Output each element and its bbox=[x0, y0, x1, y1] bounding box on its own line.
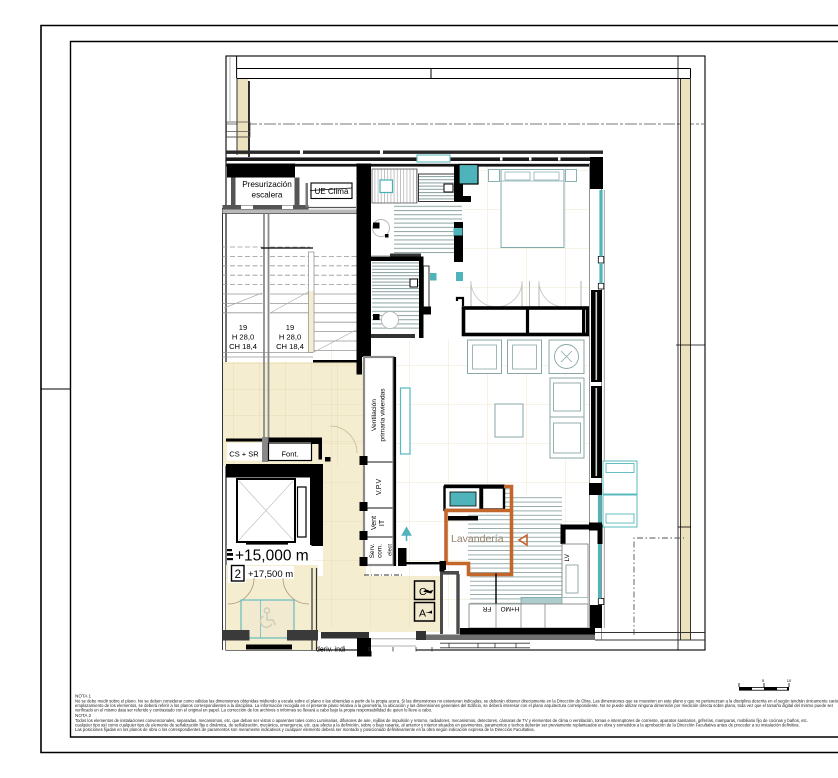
svg-text:+17,500 m: +17,500 m bbox=[248, 569, 293, 580]
svg-text:Ventilación: Ventilación bbox=[371, 399, 378, 431]
svg-text:LV: LV bbox=[564, 553, 571, 561]
svg-text:A: A bbox=[419, 608, 426, 620]
svg-text:CS + SR: CS + SR bbox=[229, 450, 259, 459]
svg-text:CH 18,4: CH 18,4 bbox=[229, 342, 257, 351]
svg-text:19: 19 bbox=[239, 323, 247, 332]
svg-text:com.: com. bbox=[377, 544, 384, 558]
svg-text:primaria viviendas: primaria viviendas bbox=[380, 388, 387, 442]
svg-text:+15,000 m: +15,000 m bbox=[235, 548, 309, 565]
svg-text:Las posiciones fijadas en los: Las posiciones fijadas en los planos de … bbox=[75, 727, 535, 732]
svg-text:10: 10 bbox=[787, 678, 792, 683]
svg-text:Serv.: Serv. bbox=[369, 544, 376, 559]
svg-text:2: 2 bbox=[235, 569, 241, 581]
svg-text:Presurización: Presurización bbox=[242, 180, 292, 189]
svg-text:verificado en el mismo data se: verificado en el mismo data ser referido… bbox=[75, 708, 432, 713]
svg-text:Font.: Font. bbox=[281, 450, 298, 459]
svg-text:FR: FR bbox=[482, 605, 491, 612]
svg-text:escalera: escalera bbox=[252, 191, 283, 200]
svg-text:Lavandería: Lavandería bbox=[451, 533, 504, 545]
svg-text:H+MO: H+MO bbox=[501, 605, 520, 612]
svg-text:CH 18,4: CH 18,4 bbox=[276, 342, 304, 351]
svg-text:19: 19 bbox=[286, 323, 294, 332]
svg-text:H 28,0: H 28,0 bbox=[279, 333, 301, 342]
svg-text:deriv. indi: deriv. indi bbox=[316, 647, 346, 654]
svg-text:IT: IT bbox=[379, 519, 386, 526]
svg-text:H 28,0: H 28,0 bbox=[232, 333, 254, 342]
svg-text:V.P.V: V.P.V bbox=[376, 478, 383, 495]
svg-text:elect: elect bbox=[388, 544, 394, 556]
svg-text:Vent: Vent bbox=[371, 516, 378, 530]
